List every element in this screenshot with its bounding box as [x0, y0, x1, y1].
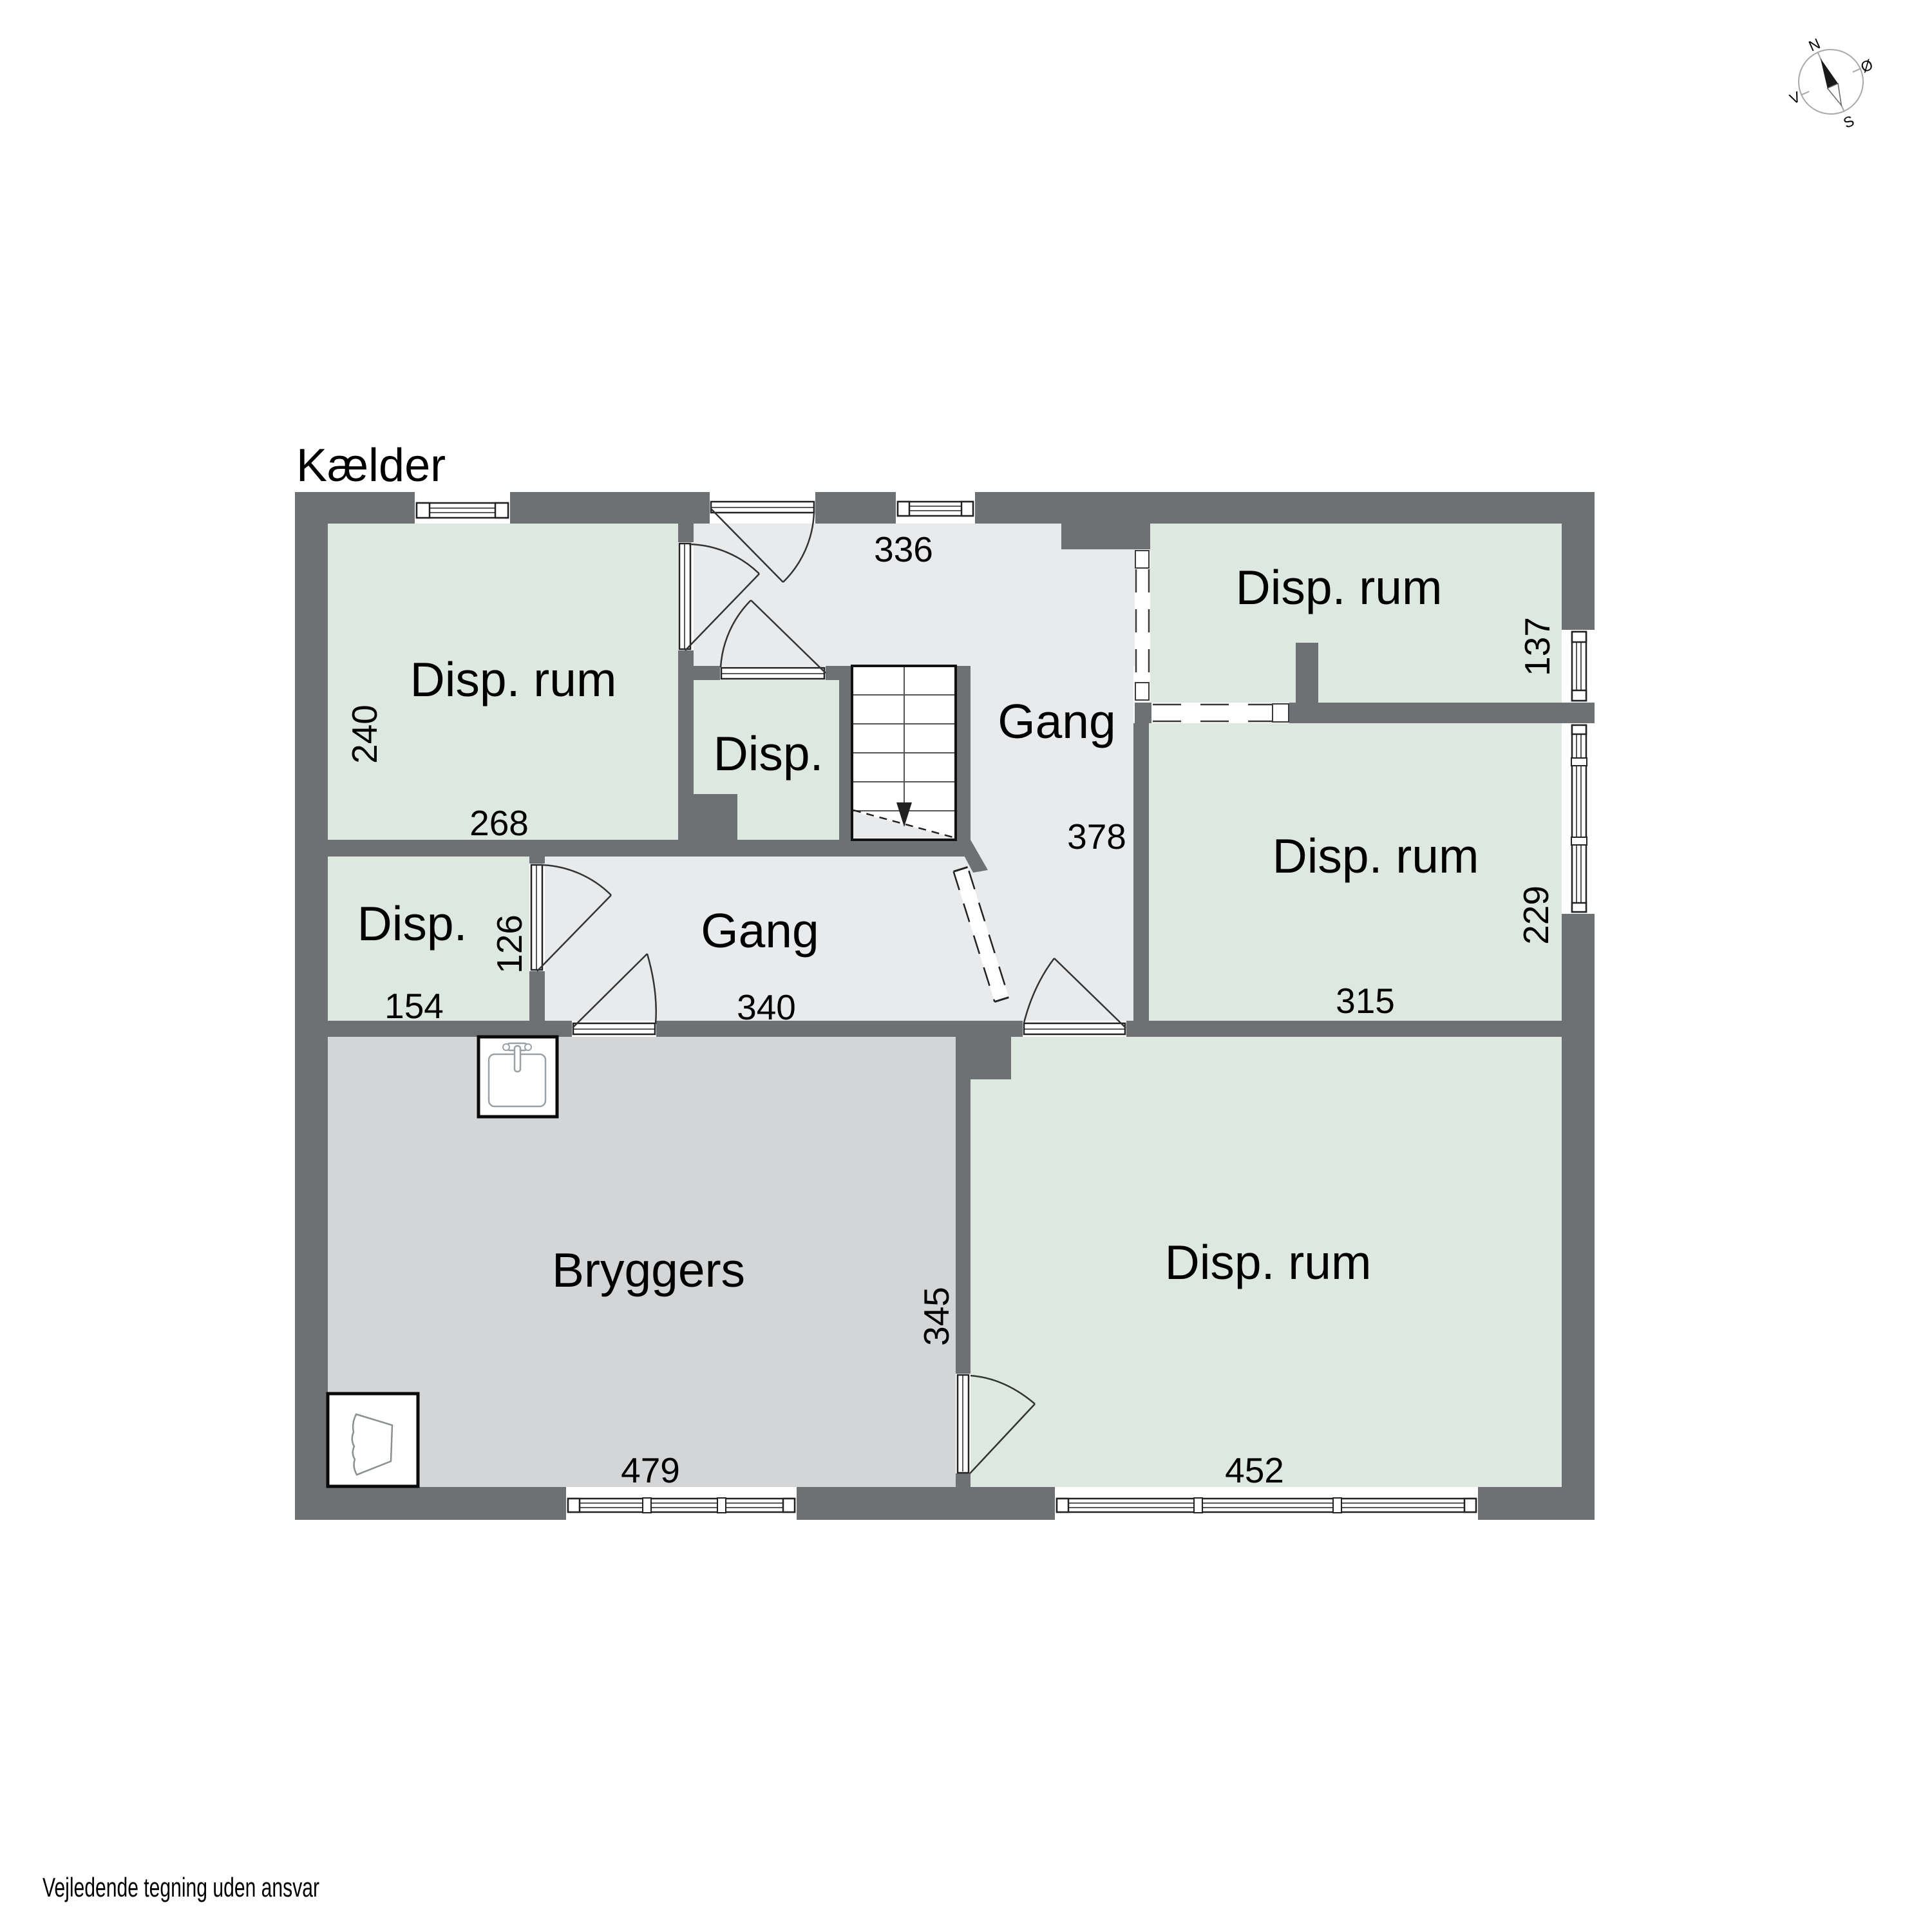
svg-text:240: 240: [345, 705, 384, 764]
svg-text:229: 229: [1516, 885, 1556, 945]
svg-text:Disp. rum: Disp. rum: [1236, 560, 1443, 614]
svg-text:Gang: Gang: [998, 694, 1115, 748]
svg-text:126: 126: [489, 914, 529, 974]
svg-text:Bryggers: Bryggers: [552, 1243, 745, 1297]
svg-text:378: 378: [1067, 817, 1126, 857]
svg-text:154: 154: [384, 986, 444, 1026]
svg-text:479: 479: [621, 1450, 680, 1490]
svg-text:340: 340: [737, 987, 796, 1027]
svg-text:315: 315: [1336, 981, 1395, 1021]
svg-text:Disp. rum: Disp. rum: [1273, 829, 1479, 883]
svg-text:Vejledende tegning uden ansvar: Vejledende tegning uden ansvar: [43, 1872, 319, 1902]
svg-text:336: 336: [874, 529, 933, 569]
svg-text:268: 268: [469, 803, 529, 843]
svg-text:Gang: Gang: [701, 904, 819, 958]
svg-text:Disp. rum: Disp. rum: [410, 652, 617, 706]
svg-text:452: 452: [1225, 1450, 1284, 1490]
svg-text:Disp.: Disp.: [357, 896, 468, 951]
svg-text:Disp.: Disp.: [714, 726, 824, 781]
svg-text:137: 137: [1517, 617, 1557, 676]
svg-text:Disp. rum: Disp. rum: [1165, 1235, 1372, 1289]
svg-text:Kælder: Kælder: [296, 440, 446, 491]
svg-text:345: 345: [916, 1287, 956, 1346]
